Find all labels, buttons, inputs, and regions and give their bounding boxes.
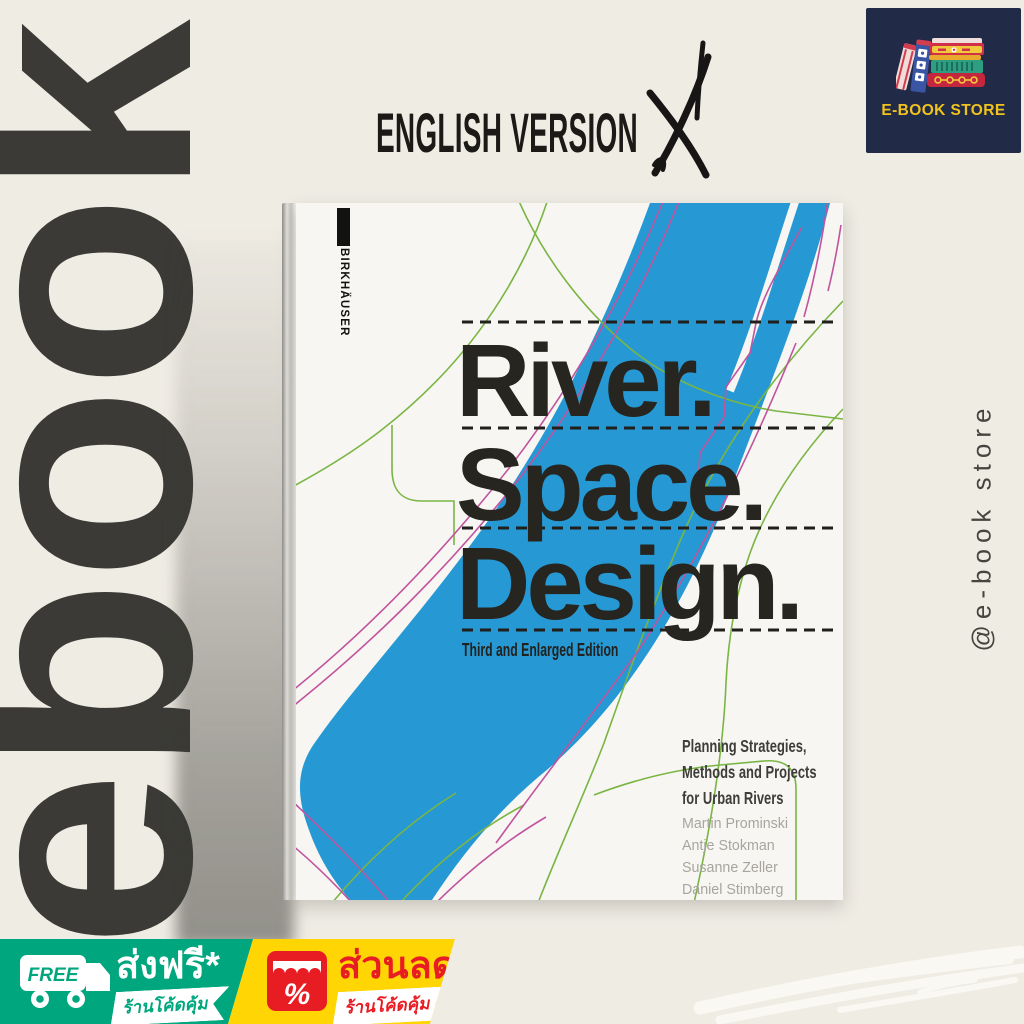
truck-icon: FREE	[18, 951, 118, 1013]
book-title-line: Design.	[456, 532, 800, 635]
author-list: Martin Prominski Antje Stokman Susanne Z…	[682, 813, 807, 900]
discount-title: ส่วนลด	[338, 941, 456, 991]
edition-label: Third and Enlarged Edition	[462, 640, 618, 661]
publisher-spine-logo: BIRKHÄUSER	[338, 248, 350, 337]
book-subtitle: Planning Strategies, Methods and Project…	[682, 733, 817, 811]
english-version-label: ENGLISH VERSION	[376, 100, 638, 165]
book-pages-edge	[282, 203, 296, 900]
shop-code-ribbon: ร้านโค้ดคุ้ม	[111, 986, 230, 1024]
percent-icon: %	[284, 978, 311, 1011]
book-title-line: Space.	[456, 433, 764, 536]
author-name: Susanne Zeller	[682, 857, 807, 879]
discount-badge: % ส่วนลด ร้านโค้ดคุ้ม	[228, 939, 460, 1024]
subtitle-line: Methods and Projects	[682, 759, 817, 785]
subtitle-line: Planning Strategies,	[682, 733, 817, 759]
author-name: Daniel Stimberg	[682, 879, 807, 900]
store-logo: E-BOOK STORE	[866, 8, 1021, 153]
brush-x-icon	[630, 35, 730, 195]
books-stack-icon	[896, 30, 991, 96]
author-name: Martin Prominski	[682, 813, 807, 835]
book-cover: BIRKHÄUSER River. Space. Design. Third a…	[296, 203, 843, 900]
subtitle-line: for Urban Rivers	[682, 785, 817, 811]
free-shipping-badge: FREE ส่งฟรี* ร้านโค้ดคุ้ม	[0, 939, 260, 1024]
truck-free-label: FREE	[28, 965, 80, 986]
shop-code-ribbon: ร้านโค้ดคุ้ม	[333, 986, 452, 1024]
shop-icon: %	[266, 947, 330, 1015]
social-handle: @e-book store	[967, 403, 998, 652]
publisher-spine-bar	[337, 208, 350, 246]
book-title-line: River.	[456, 329, 713, 432]
promo-image: ebook	[0, 0, 1024, 1024]
brush-swoosh	[690, 930, 1024, 1024]
author-name: Antje Stokman	[682, 835, 807, 857]
store-logo-label: E-BOOK STORE	[866, 102, 1021, 120]
book-mockup: BIRKHÄUSER River. Space. Design. Third a…	[282, 203, 843, 900]
shipping-title: ส่งฟรี*	[116, 941, 220, 991]
book-shadow	[176, 238, 294, 946]
